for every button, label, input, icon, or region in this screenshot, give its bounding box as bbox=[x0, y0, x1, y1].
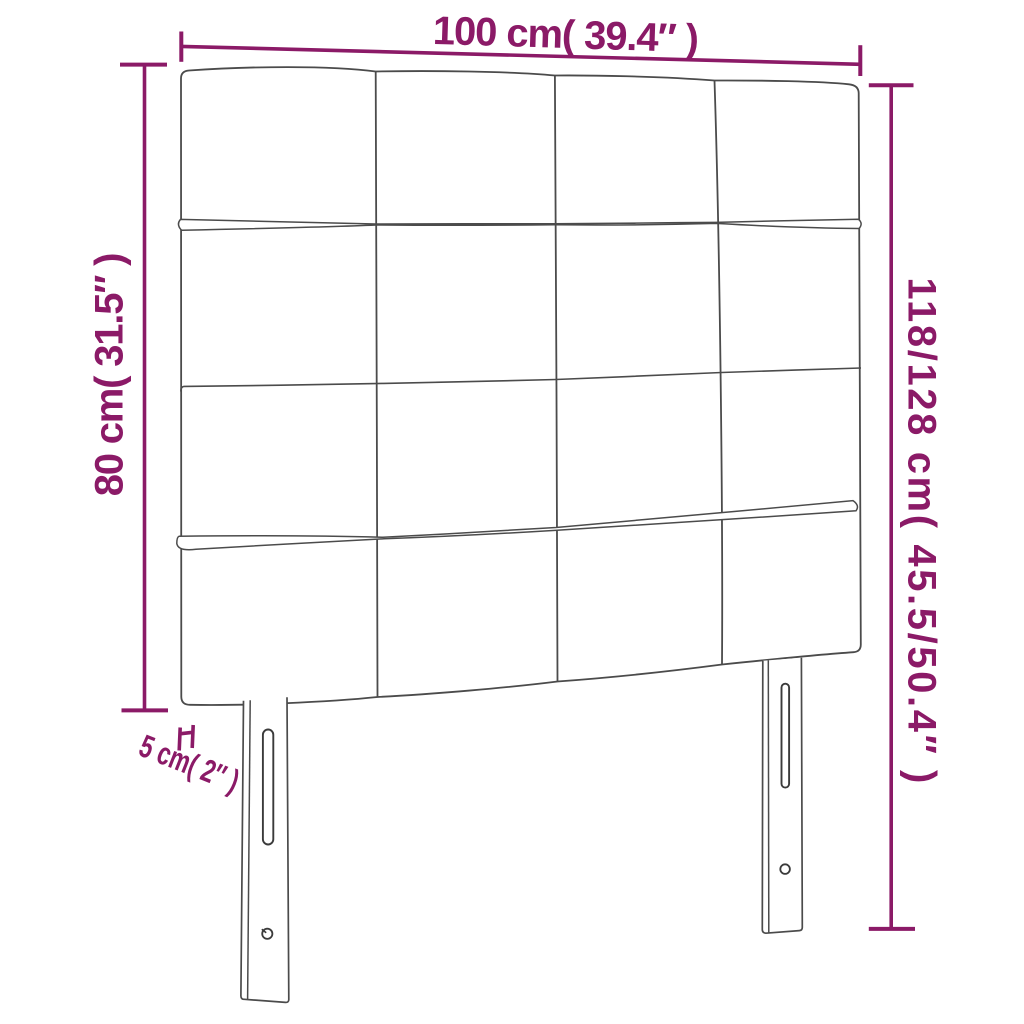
svg-text:100 cm( 39.4″ ): 100 cm( 39.4″ ) bbox=[432, 9, 698, 61]
svg-text:118/128 cm( 45.5/50.4″ ): 118/128 cm( 45.5/50.4″ ) bbox=[900, 277, 944, 786]
svg-text:5 cm( 2″ ): 5 cm( 2″ ) bbox=[134, 728, 244, 800]
svg-text:80 cm( 31.5″ ): 80 cm( 31.5″ ) bbox=[88, 254, 132, 497]
